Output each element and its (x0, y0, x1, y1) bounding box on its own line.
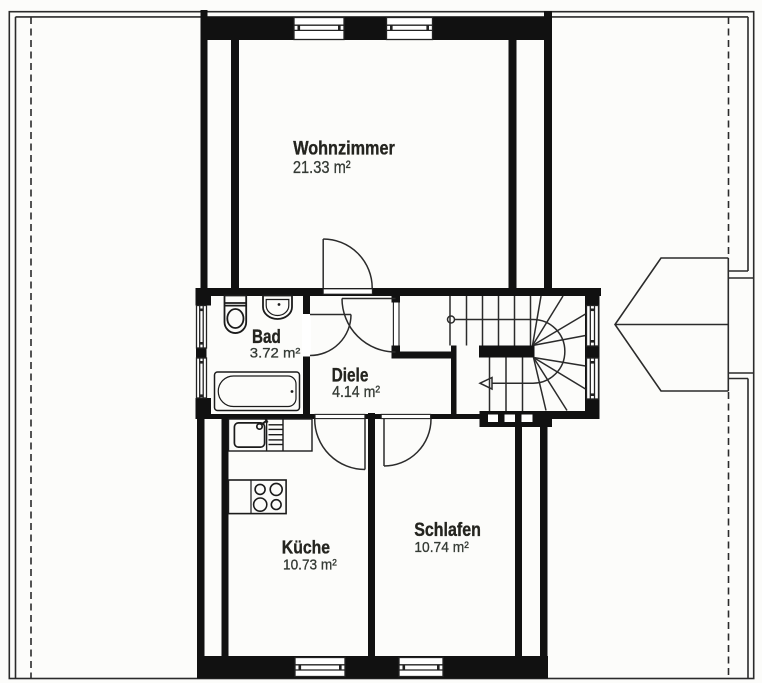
svg-text:21.33 m²: 21.33 m² (293, 157, 351, 177)
svg-text:10.74 m²: 10.74 m² (414, 539, 468, 556)
svg-text:Schlafen: Schlafen (414, 520, 481, 541)
svg-text:10.73 m²: 10.73 m² (283, 556, 337, 573)
svg-text:3.72 m²: 3.72 m² (250, 344, 301, 360)
svg-text:4.14 m²: 4.14 m² (332, 384, 381, 401)
